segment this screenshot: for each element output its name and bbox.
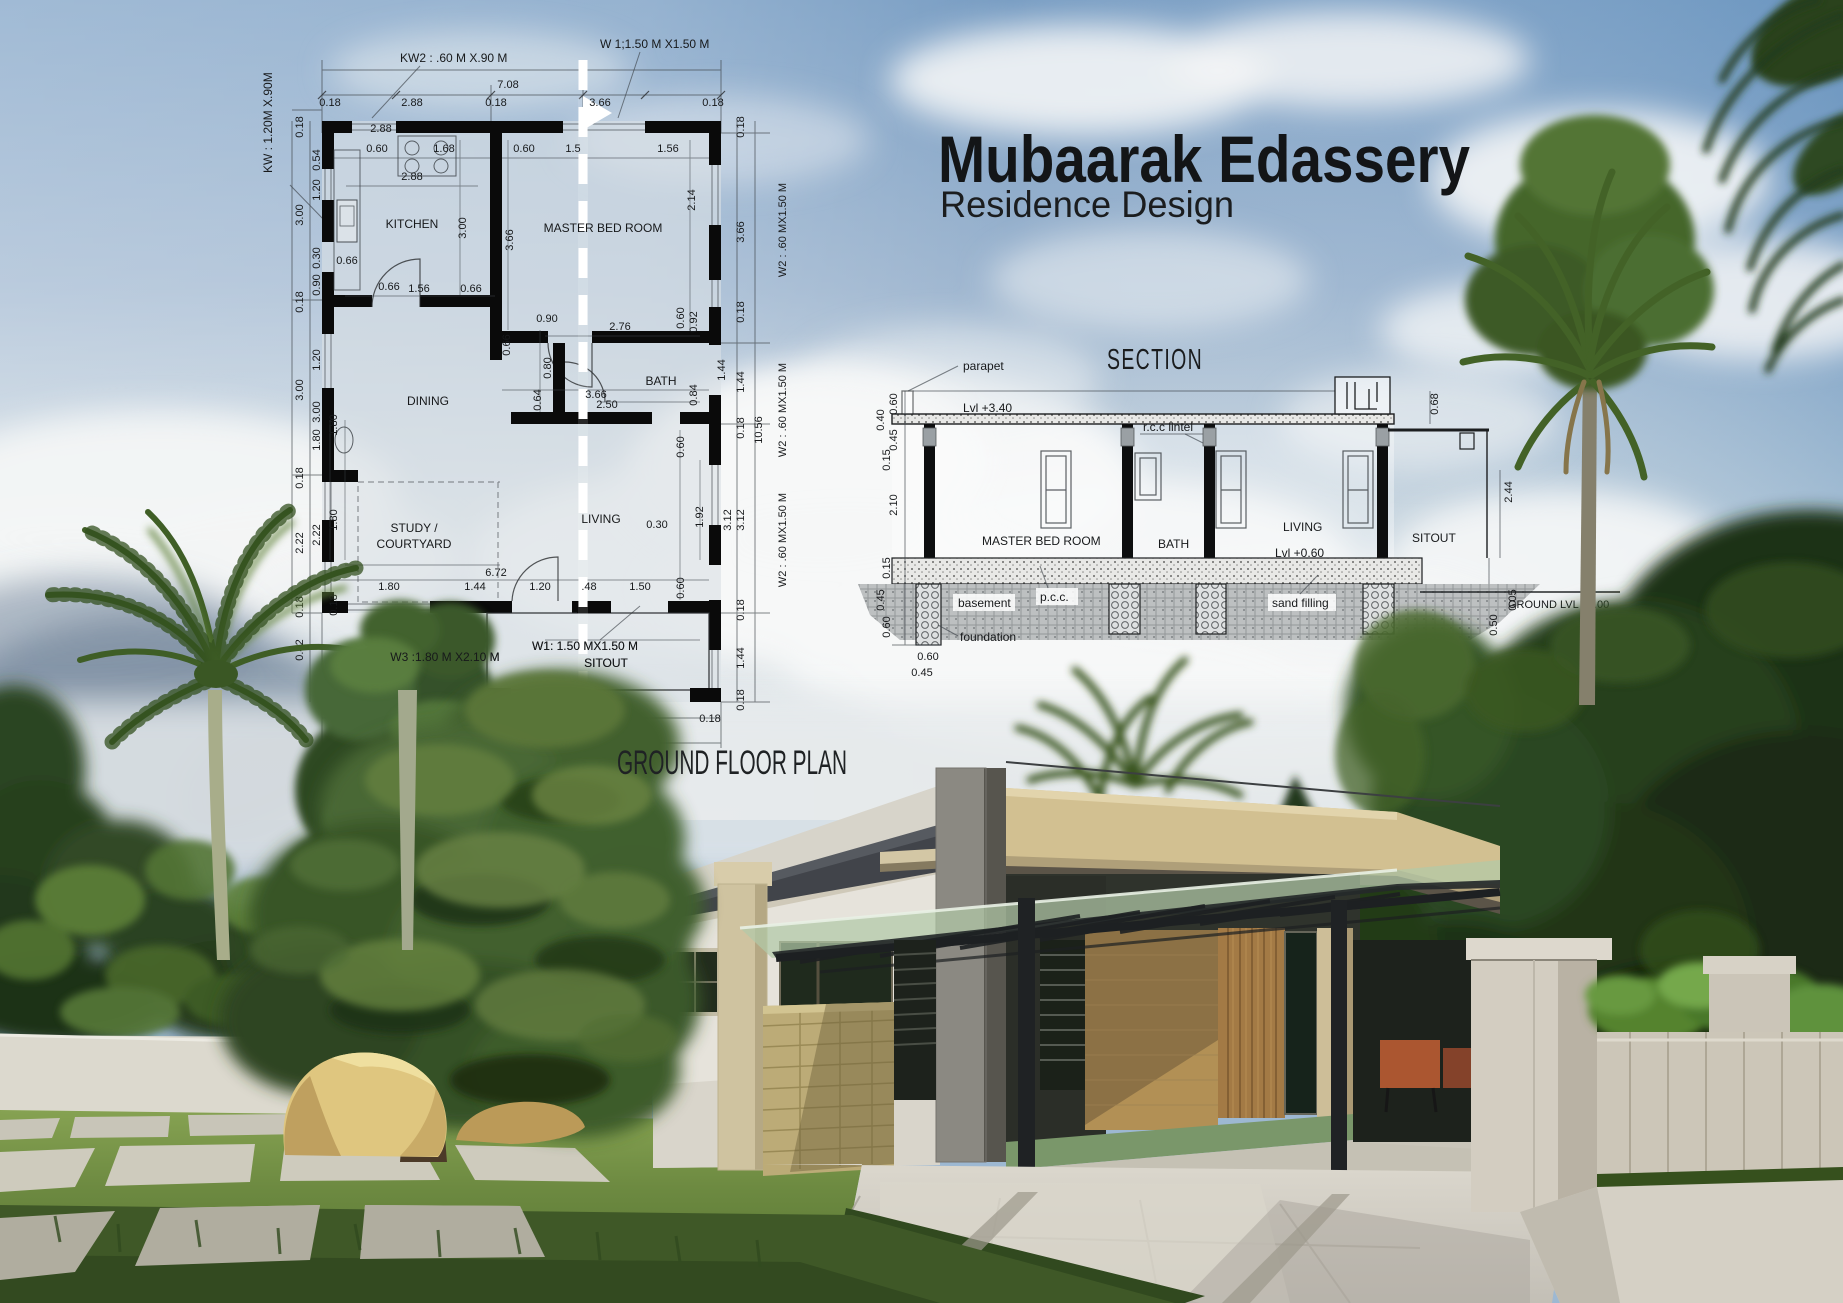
svg-text:KITCHEN: KITCHEN [386, 217, 439, 231]
svg-text:LIVING: LIVING [581, 512, 620, 526]
svg-text:KW2 : .60 M X.90 M: KW2 : .60 M X.90 M [400, 51, 507, 65]
svg-text:0.60: 0.60 [675, 436, 687, 457]
svg-text:1.56: 1.56 [408, 283, 429, 295]
svg-text:2.14: 2.14 [686, 189, 698, 210]
svg-text:0.40: 0.40 [875, 409, 887, 430]
svg-text:1.56: 1.56 [657, 143, 678, 155]
svg-text:0.05: 0.05 [1507, 589, 1519, 610]
svg-text:0.68: 0.68 [1429, 393, 1441, 414]
svg-text:1.20: 1.20 [311, 179, 323, 200]
svg-text:0.60: 0.60 [888, 393, 900, 414]
svg-text:0.18: 0.18 [485, 97, 506, 109]
svg-text:3.66: 3.66 [735, 221, 747, 242]
svg-text:0.60: 0.60 [675, 577, 687, 598]
svg-text:3.12: 3.12 [735, 509, 747, 530]
svg-text:1.44: 1.44 [716, 359, 728, 380]
svg-text:0.18: 0.18 [319, 97, 340, 109]
svg-text:2.88: 2.88 [370, 123, 391, 135]
svg-text:0.66: 0.66 [460, 283, 481, 295]
svg-text:COURTYARD: COURTYARD [377, 537, 452, 551]
svg-text:0.18: 0.18 [328, 594, 340, 615]
svg-text:p.c.c.: p.c.c. [1040, 590, 1069, 604]
svg-text:SECTION: SECTION [1107, 344, 1203, 376]
svg-text:BATH: BATH [1158, 537, 1189, 551]
svg-text:2.76: 2.76 [609, 321, 630, 333]
svg-text:0.64: 0.64 [532, 389, 544, 410]
svg-text:0.18: 0.18 [294, 467, 306, 488]
svg-text:1.20: 1.20 [311, 349, 323, 370]
svg-text:0.60: 0.60 [513, 143, 534, 155]
svg-text:W1: 1.50 MX1.50 M: W1: 1.50 MX1.50 M [532, 639, 638, 653]
svg-text:0.60: 0.60 [917, 651, 938, 663]
svg-text:2.88: 2.88 [401, 171, 422, 183]
svg-text:0.18: 0.18 [735, 417, 747, 438]
svg-text:0.18: 0.18 [294, 116, 306, 137]
svg-text:W2 : .60 MX1.50 M: W2 : .60 MX1.50 M [777, 183, 789, 277]
svg-text:0.30: 0.30 [311, 247, 323, 268]
svg-text:3.66: 3.66 [589, 97, 610, 109]
svg-text:foundation: foundation [960, 630, 1016, 644]
svg-text:0.92: 0.92 [688, 311, 700, 332]
svg-text:3.00: 3.00 [294, 379, 306, 400]
svg-text:0.30: 0.30 [646, 519, 667, 531]
svg-text:W2 : .60 MX1.50 M: W2 : .60 MX1.50 M [777, 493, 789, 587]
svg-text:0.18: 0.18 [735, 301, 747, 322]
svg-text:DINING: DINING [407, 394, 449, 408]
svg-text:2.88: 2.88 [401, 97, 422, 109]
svg-text:2.50: 2.50 [596, 399, 617, 411]
svg-text:1.80: 1.80 [328, 414, 340, 435]
svg-text:2.22: 2.22 [311, 524, 323, 545]
svg-text:0.80: 0.80 [542, 357, 554, 378]
svg-text:BATH: BATH [645, 374, 676, 388]
svg-text:2.10: 2.10 [888, 494, 900, 515]
svg-text:1.80: 1.80 [328, 509, 340, 530]
svg-text:W3 :1.80 M X2.10 M: W3 :1.80 M X2.10 M [390, 650, 499, 664]
svg-text:1.44: 1.44 [735, 371, 747, 392]
svg-text:7.08: 7.08 [497, 79, 518, 91]
svg-text:0.18: 0.18 [294, 291, 306, 312]
svg-text:0.45: 0.45 [875, 589, 887, 610]
svg-text:0.15: 0.15 [881, 557, 893, 578]
svg-text:W 1;1.50 M X1.50 M: W 1;1.50 M X1.50 M [600, 37, 709, 51]
svg-text:r.c.c lintel: r.c.c lintel [1143, 420, 1193, 434]
svg-text:0.54: 0.54 [311, 149, 323, 170]
svg-text:3.00: 3.00 [311, 401, 323, 422]
svg-text:SITOUT: SITOUT [584, 656, 628, 670]
svg-text:2.44: 2.44 [1503, 481, 1515, 502]
svg-text:0.66: 0.66 [336, 255, 357, 267]
svg-text:2.22: 2.22 [294, 532, 306, 553]
svg-text:1.44: 1.44 [464, 581, 485, 593]
svg-text:SITOUT: SITOUT [1412, 531, 1456, 545]
svg-text:.48: .48 [581, 581, 596, 593]
svg-text:Residence Design: Residence Design [940, 184, 1234, 225]
svg-text:0.90: 0.90 [536, 313, 557, 325]
svg-text:1.68: 1.68 [433, 143, 454, 155]
svg-text:GROUND FLOOR PLAN: GROUND FLOOR PLAN [617, 744, 847, 782]
svg-text:0.60: 0.60 [881, 616, 893, 637]
svg-text:parapet: parapet [963, 359, 1004, 373]
svg-text:1.5: 1.5 [565, 143, 580, 155]
svg-text:KW : 1.20M X.90M: KW : 1.20M X.90M [261, 72, 275, 173]
svg-text:1.92: 1.92 [694, 506, 706, 527]
svg-text:1.50: 1.50 [629, 581, 650, 593]
svg-text:3.66: 3.66 [504, 229, 516, 250]
svg-text:1.44: 1.44 [735, 647, 747, 668]
svg-text:0.18: 0.18 [699, 713, 720, 725]
svg-text:1.80: 1.80 [311, 429, 323, 450]
svg-text:MASTER BED ROOM: MASTER BED ROOM [982, 534, 1101, 548]
svg-text:LIVING: LIVING [1283, 520, 1322, 534]
svg-text:W2 : .60 MX1.50 M: W2 : .60 MX1.50 M [777, 363, 789, 457]
svg-text:0.18: 0.18 [702, 97, 723, 109]
svg-text:3.00: 3.00 [294, 204, 306, 225]
svg-text:MASTER BED ROOM: MASTER BED ROOM [544, 221, 663, 235]
svg-text:0.50: 0.50 [1488, 614, 1500, 635]
svg-text:10.56: 10.56 [753, 416, 765, 444]
svg-text:0.90: 0.90 [311, 274, 323, 295]
svg-text:0.15: 0.15 [881, 449, 893, 470]
svg-text:0.18: 0.18 [735, 599, 747, 620]
svg-text:0.60: 0.60 [675, 307, 687, 328]
svg-text:basement: basement [958, 596, 1011, 610]
svg-text:3.12: 3.12 [722, 509, 734, 530]
svg-text:0.60: 0.60 [366, 143, 387, 155]
svg-text:STUDY /: STUDY / [390, 521, 438, 535]
svg-text:0.18: 0.18 [735, 116, 747, 137]
svg-text:sand filling: sand filling [1272, 596, 1329, 610]
svg-text:6.72: 6.72 [485, 567, 506, 579]
svg-text:0.18: 0.18 [735, 689, 747, 710]
svg-text:Lvl +3.40: Lvl +3.40 [963, 401, 1012, 415]
svg-text:3.00: 3.00 [457, 217, 469, 238]
svg-text:1.80: 1.80 [378, 581, 399, 593]
svg-text:0.66: 0.66 [501, 334, 513, 355]
svg-text:1.20: 1.20 [529, 581, 550, 593]
svg-text:0.45: 0.45 [888, 429, 900, 450]
svg-text:0.66: 0.66 [378, 281, 399, 293]
svg-text:0.45: 0.45 [911, 667, 932, 679]
svg-text:0.84: 0.84 [688, 384, 700, 405]
